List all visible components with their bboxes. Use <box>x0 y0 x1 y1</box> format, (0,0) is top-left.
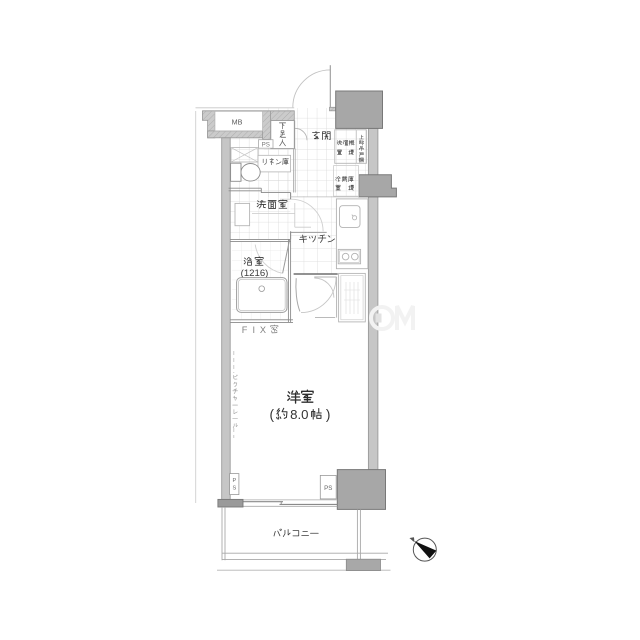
svg-text:): ) <box>326 407 331 422</box>
svg-text:X: X <box>260 325 266 335</box>
svg-text:8.0: 8.0 <box>290 407 308 422</box>
svg-text:I: I <box>253 325 256 335</box>
svg-text:F: F <box>242 325 248 335</box>
svg-text:P: P <box>233 478 237 484</box>
svg-text:S: S <box>233 485 237 491</box>
svg-text:PS: PS <box>324 485 332 492</box>
svg-text:(: ( <box>270 407 275 422</box>
svg-text:MB: MB <box>232 117 243 126</box>
svg-text:PS: PS <box>262 141 270 148</box>
